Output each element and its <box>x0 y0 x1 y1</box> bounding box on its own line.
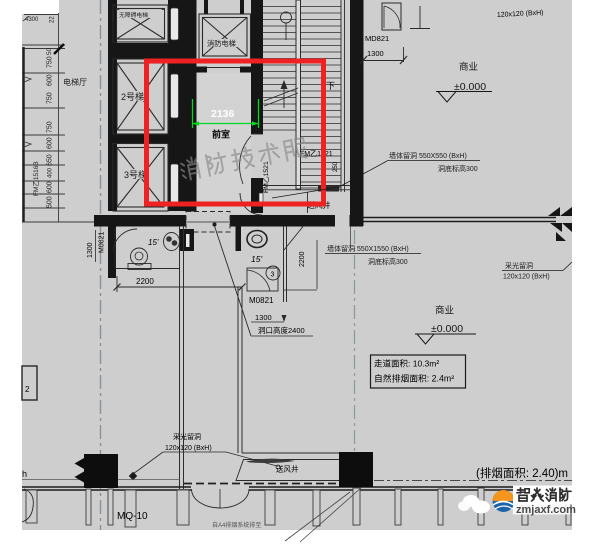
svg-text:750: 750 <box>47 92 54 104</box>
svg-text:电梯厅: 电梯厅 <box>63 77 87 87</box>
svg-text:MD821: MD821 <box>365 34 389 43</box>
svg-text:洞底标高300: 洞底标高300 <box>368 257 408 266</box>
svg-text:(排烟面积: 2.40)m: (排烟面积: 2.40)m <box>476 466 568 480</box>
svg-text:商业: 商业 <box>459 61 478 73</box>
svg-text:600: 600 <box>47 74 54 86</box>
svg-text:1300: 1300 <box>255 313 272 322</box>
svg-text:送风井: 送风井 <box>276 464 299 474</box>
svg-text:M0821: M0821 <box>99 231 106 253</box>
svg-text:2: 2 <box>25 385 30 394</box>
svg-text:600: 600 <box>47 137 54 149</box>
svg-text:无障碍电梯: 无障碍电梯 <box>119 11 148 19</box>
svg-text:洞底标高300: 洞底标高300 <box>438 164 478 173</box>
svg-text:下: 下 <box>326 81 335 91</box>
svg-text:自然排烟面积: 2.4m²: 自然排烟面积: 2.4m² <box>374 373 454 384</box>
svg-text:120x120 (BxH): 120x120 (BxH) <box>503 274 550 281</box>
svg-text:商业: 商业 <box>435 305 454 317</box>
svg-text:2号梯: 2号梯 <box>121 91 144 102</box>
svg-text:50: 50 <box>46 47 53 55</box>
svg-text:自A4排烟系统排至: 自A4排烟系统排至 <box>212 521 261 529</box>
svg-text:墙体留洞 550X550 (BxH): 墙体留洞 550X550 (BxH) <box>389 151 467 160</box>
svg-text:±0.000: ±0.000 <box>431 323 463 335</box>
svg-text:FM乙1516B: FM乙1516B <box>32 161 40 196</box>
svg-text:750: 750 <box>47 56 54 68</box>
svg-text:2200: 2200 <box>299 251 306 267</box>
svg-text:15': 15' <box>251 254 262 264</box>
svg-text:前室: 前室 <box>212 129 230 140</box>
svg-text:400: 400 <box>48 167 54 178</box>
svg-text:M0821: M0821 <box>249 296 274 305</box>
svg-text:zmjaxf.com: zmjaxf.com <box>516 504 576 516</box>
svg-text:250: 250 <box>333 161 339 172</box>
svg-text:2200: 2200 <box>136 277 154 286</box>
svg-text:采光留洞: 采光留洞 <box>505 261 533 270</box>
svg-text:消防电梯: 消防电梯 <box>207 39 236 48</box>
svg-text:FM乙1521: FM乙1521 <box>262 161 270 193</box>
svg-text:采光留洞: 采光留洞 <box>173 432 201 441</box>
svg-text:750: 750 <box>47 121 54 133</box>
svg-text:3号梯: 3号梯 <box>124 169 147 180</box>
svg-text:MQ-10: MQ-10 <box>117 511 148 522</box>
svg-text:h: h <box>22 469 27 479</box>
svg-text:500: 500 <box>47 196 54 208</box>
svg-text:1300: 1300 <box>367 49 384 58</box>
svg-text:650: 650 <box>47 154 54 166</box>
svg-text:600: 600 <box>47 181 54 193</box>
svg-text:走道面积: 10.3m²: 走道面积: 10.3m² <box>374 359 439 369</box>
svg-text:2136: 2136 <box>211 108 235 120</box>
svg-text:洞口高度2400: 洞口高度2400 <box>258 325 305 335</box>
svg-text:15': 15' <box>148 238 159 247</box>
svg-text:120x120 (BxH): 120x120 (BxH) <box>165 445 212 452</box>
svg-text:1300: 1300 <box>87 242 94 258</box>
svg-text:22: 22 <box>50 16 56 23</box>
svg-text:墙体留洞 550X1550 (BxH): 墙体留洞 550X1550 (BxH) <box>327 244 409 253</box>
svg-text:3: 3 <box>271 272 275 279</box>
